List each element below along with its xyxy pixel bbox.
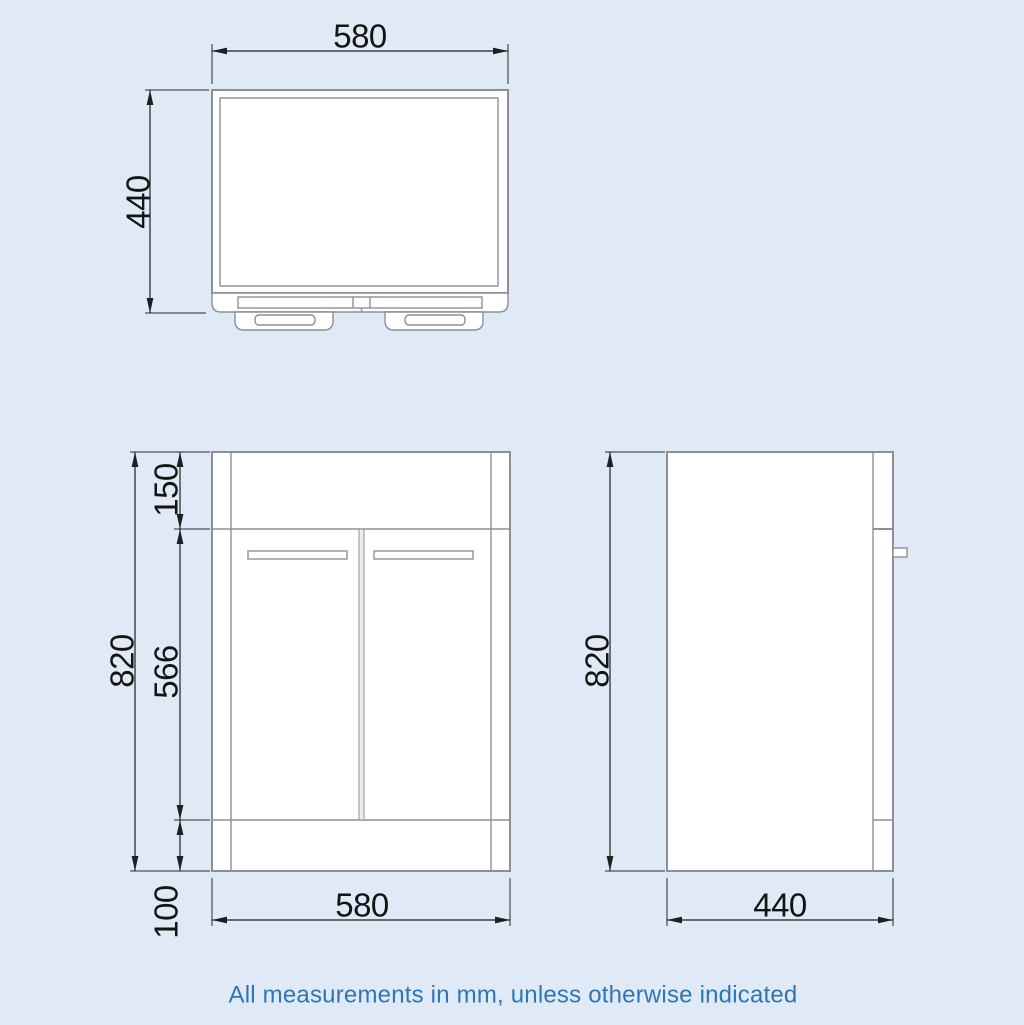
dim-label-top-width: 580	[333, 18, 387, 55]
measurements-note: All measurements in mm, unless otherwise…	[229, 982, 798, 1009]
dim-label-top-depth: 440	[120, 175, 157, 229]
dim-label-side-height: 820	[579, 634, 616, 688]
top-view-right-handle-inner	[405, 315, 465, 325]
front-view-left-door-handle	[248, 551, 347, 559]
side-view-handle-profile	[893, 548, 907, 557]
dim-label-front-door-height: 566	[148, 645, 185, 699]
front-view-door-divider	[359, 529, 364, 820]
side-view-cabinet-outline	[667, 452, 893, 871]
dim-label-front-top-section: 150	[148, 463, 185, 517]
dim-label-front-height: 820	[104, 634, 141, 688]
technical-drawing: 580 440 820 150	[0, 0, 1024, 1025]
dim-label-side-depth: 440	[753, 887, 807, 924]
dim-label-front-plinth: 100	[148, 885, 185, 939]
top-view-left-handle-inner	[255, 315, 315, 325]
top-view-door-top-strip	[238, 297, 482, 308]
top-view-cabinet-outline	[212, 90, 508, 293]
dim-label-front-width: 580	[335, 887, 389, 924]
dimension-diagram-page: 580 440 820 150	[0, 0, 1024, 1025]
front-view-right-door-handle	[374, 551, 473, 559]
